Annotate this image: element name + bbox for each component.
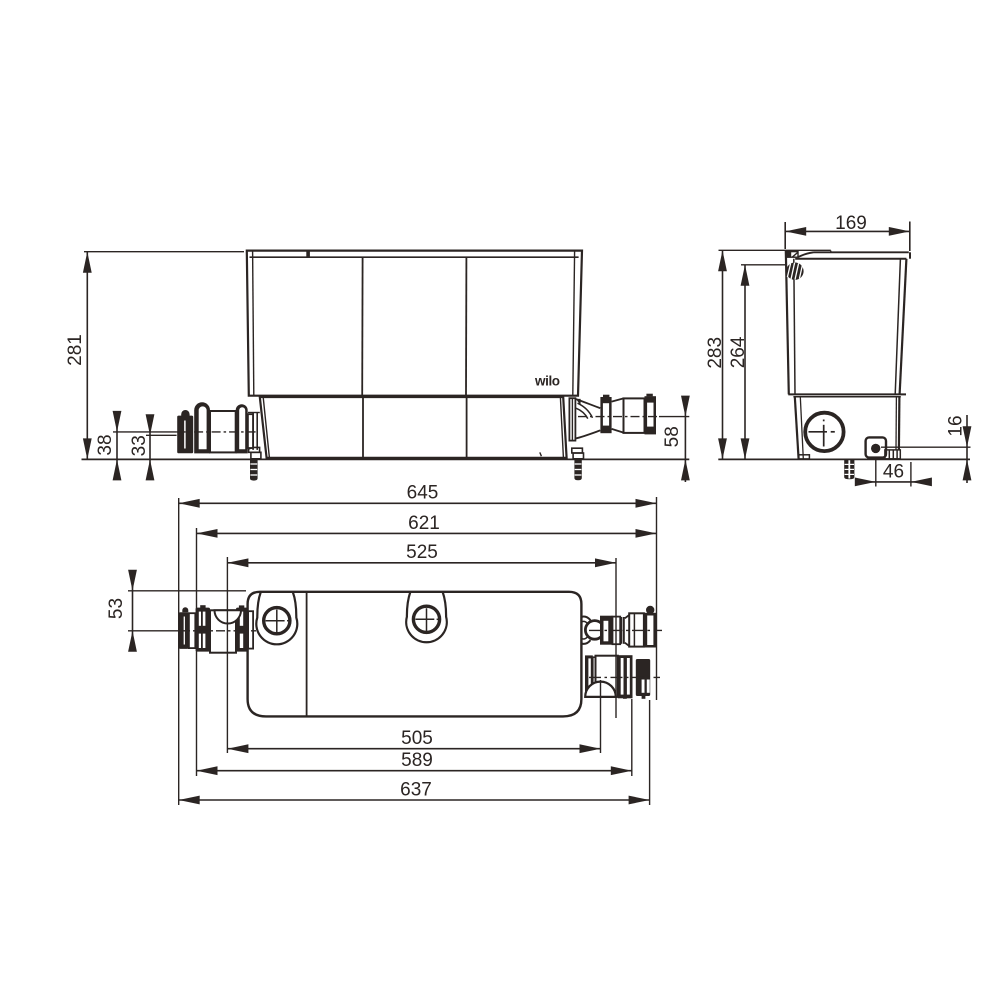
svg-text:645: 645 bbox=[407, 483, 439, 504]
svg-text:525: 525 bbox=[406, 542, 438, 563]
svg-text:53: 53 bbox=[106, 598, 127, 619]
svg-text:621: 621 bbox=[408, 513, 440, 534]
svg-text:637: 637 bbox=[400, 779, 432, 800]
svg-text:wilo: wilo bbox=[534, 374, 560, 389]
svg-text:169: 169 bbox=[835, 213, 867, 234]
svg-text:16: 16 bbox=[946, 415, 967, 436]
svg-text:58: 58 bbox=[662, 426, 683, 447]
svg-text:283: 283 bbox=[705, 337, 726, 369]
svg-text:33: 33 bbox=[129, 435, 150, 456]
svg-text:589: 589 bbox=[401, 750, 433, 771]
svg-text:505: 505 bbox=[401, 728, 433, 749]
svg-text:46: 46 bbox=[883, 462, 904, 483]
svg-text:281: 281 bbox=[65, 334, 86, 366]
svg-text:264: 264 bbox=[728, 336, 749, 368]
svg-text:38: 38 bbox=[95, 434, 116, 455]
